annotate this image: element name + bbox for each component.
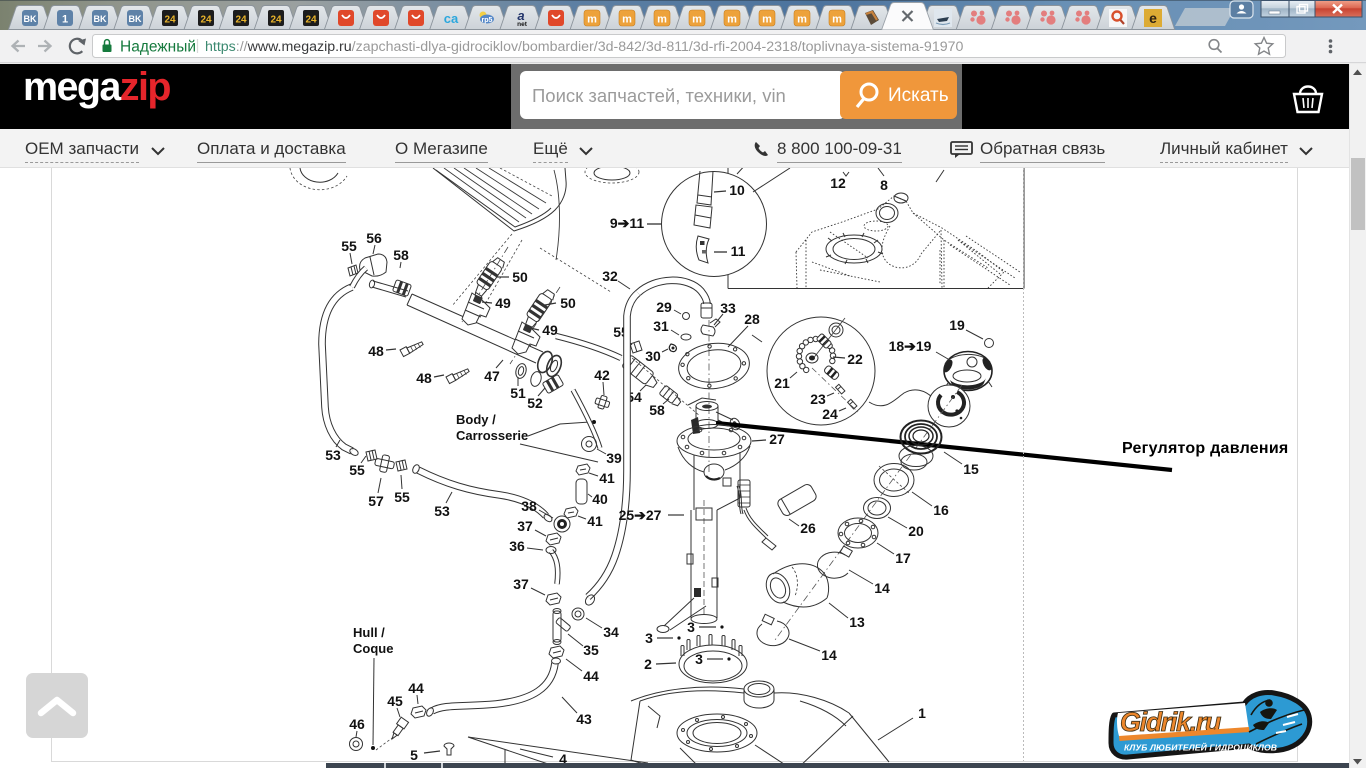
svg-text:m: m (727, 14, 737, 26)
svg-text:Надежный: Надежный (120, 39, 196, 56)
svg-text:https://www.megazip.ru/zapchas: https://www.megazip.ru/zapchasti-dlya-gi… (205, 39, 963, 55)
svg-text:m: m (762, 14, 772, 26)
svg-text:3: 3 (695, 651, 703, 667)
svg-text:17: 17 (895, 550, 911, 566)
svg-text:m: m (657, 14, 667, 26)
svg-text:33: 33 (720, 300, 736, 316)
svg-text:24: 24 (235, 15, 247, 26)
svg-text:14: 14 (874, 580, 890, 596)
svg-text:39: 39 (606, 450, 622, 466)
svg-text:53: 53 (325, 447, 341, 463)
svg-text:24: 24 (164, 15, 176, 26)
svg-text:48: 48 (368, 343, 384, 359)
svg-text:26: 26 (800, 520, 816, 536)
svg-text:36: 36 (509, 538, 525, 554)
svg-text:34: 34 (603, 624, 619, 640)
svg-text:12: 12 (830, 175, 846, 191)
svg-text:11: 11 (731, 243, 746, 259)
svg-text:m: m (622, 14, 632, 26)
svg-text:ca: ca (444, 11, 459, 26)
svg-text:Hull /: Hull / (353, 625, 385, 640)
svg-text:25➔27: 25➔27 (619, 507, 662, 523)
svg-text:51: 51 (510, 385, 526, 401)
svg-text:КЛУБ ЛЮБИТЕЛЕЙ ГИДРОЦИКЛОВ: КЛУБ ЛЮБИТЕЛЕЙ ГИДРОЦИКЛОВ (1124, 742, 1277, 753)
svg-text:58: 58 (393, 247, 409, 263)
svg-text:43: 43 (576, 711, 592, 727)
svg-text:19: 19 (949, 317, 965, 333)
svg-text:9➔11: 9➔11 (610, 215, 645, 231)
svg-text:44: 44 (583, 668, 599, 684)
svg-text:45: 45 (387, 693, 403, 709)
svg-text:rp5: rp5 (482, 17, 493, 24)
svg-text:16: 16 (933, 502, 949, 518)
svg-text:55: 55 (349, 462, 365, 478)
svg-text:1: 1 (62, 14, 68, 26)
svg-text:30: 30 (645, 348, 661, 364)
svg-text:44: 44 (408, 680, 424, 696)
svg-text:24: 24 (305, 15, 317, 26)
svg-text:50: 50 (512, 269, 528, 285)
svg-text:40: 40 (592, 491, 608, 507)
svg-text:28: 28 (744, 311, 760, 327)
svg-text:m: m (832, 14, 842, 26)
svg-text:15: 15 (963, 461, 979, 477)
svg-text:49: 49 (542, 322, 558, 338)
svg-text:37: 37 (513, 576, 529, 592)
svg-text:e: e (1149, 10, 1157, 26)
svg-text:18➔19: 18➔19 (889, 338, 932, 354)
svg-text:52: 52 (527, 395, 543, 411)
svg-text:35: 35 (583, 642, 599, 658)
svg-text:57: 57 (368, 493, 384, 509)
svg-text:47: 47 (484, 368, 500, 384)
svg-text:BK: BK (129, 14, 142, 24)
svg-text:31: 31 (653, 318, 669, 334)
svg-text:50: 50 (560, 295, 576, 311)
svg-text:32: 32 (602, 268, 618, 284)
svg-text:5: 5 (410, 747, 418, 763)
svg-text:BK: BK (24, 14, 37, 24)
svg-text:m: m (797, 14, 807, 26)
svg-text:8: 8 (880, 177, 888, 193)
svg-text:m: m (587, 14, 597, 26)
svg-text:27: 27 (769, 431, 785, 447)
svg-text:3: 3 (645, 630, 653, 646)
svg-text:41: 41 (587, 513, 603, 529)
svg-text:net: net (517, 21, 528, 28)
svg-text:Искать: Искать (888, 85, 949, 106)
svg-text:BK: BK (94, 14, 107, 24)
svg-text:20: 20 (908, 523, 924, 539)
svg-text:24: 24 (822, 406, 838, 422)
svg-text:29: 29 (656, 299, 672, 315)
svg-text:55: 55 (341, 238, 357, 254)
svg-text:56: 56 (366, 230, 382, 246)
svg-text:42: 42 (594, 367, 610, 383)
svg-text:55: 55 (394, 489, 410, 505)
svg-text:1: 1 (918, 705, 926, 721)
svg-text:10: 10 (729, 182, 745, 198)
svg-text:22: 22 (847, 351, 863, 367)
svg-text:38: 38 (521, 498, 537, 514)
svg-text:58: 58 (649, 402, 665, 418)
svg-text:23: 23 (810, 391, 826, 407)
svg-text:48: 48 (416, 370, 432, 386)
svg-text:21: 21 (774, 375, 790, 391)
svg-text:Coque: Coque (353, 641, 393, 656)
svg-text:2: 2 (644, 656, 652, 672)
svg-text:46: 46 (349, 716, 365, 732)
svg-text:24: 24 (200, 15, 212, 26)
svg-text:37: 37 (517, 518, 533, 534)
svg-text:53: 53 (434, 503, 450, 519)
svg-text:3: 3 (687, 619, 695, 635)
svg-text:24: 24 (270, 15, 282, 26)
svg-text:49: 49 (495, 295, 511, 311)
svg-text:Регулятор давления: Регулятор давления (1122, 440, 1289, 457)
svg-text:m: m (692, 14, 702, 26)
svg-text:14: 14 (821, 647, 837, 663)
svg-text:Body /: Body / (456, 412, 496, 427)
svg-text:Carrosserie: Carrosserie (456, 428, 528, 443)
svg-text:41: 41 (599, 470, 615, 486)
svg-text:13: 13 (849, 614, 865, 630)
